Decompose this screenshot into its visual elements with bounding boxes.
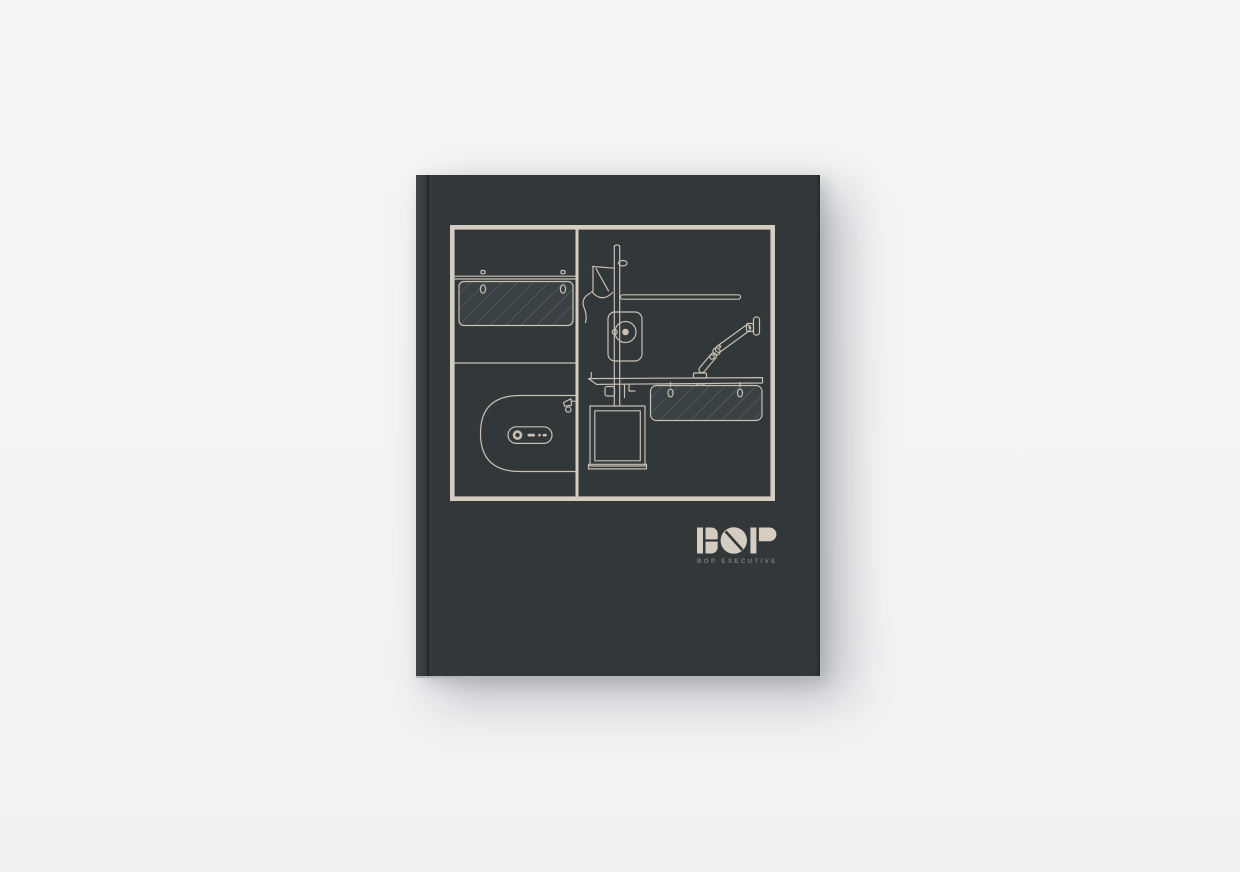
desk-clamp-detail-drawing [564,399,576,412]
brand-tagline: BOP EXECUTIVE [697,558,777,565]
cpu-box-drawing [589,406,647,469]
brand-block: BOP BOP EXECUTIVE [697,527,777,565]
power-module-drawing [508,427,552,444]
furniture-blueprint-drawing [450,225,775,501]
logo-letter-o [721,527,747,553]
spine-crease [427,175,429,676]
beam-rail-drawing [621,295,741,299]
bop-logo [697,527,777,554]
spine-highlight [416,175,427,676]
catalog-book-mockup: BOP BOP EXECUTIVE [416,175,820,678]
wall-rail-drawing [455,271,575,280]
support-pole-drawing [605,245,635,406]
front-cover: BOP BOP EXECUTIVE [416,175,820,676]
logo-letter-p [750,528,776,554]
acoustic-screen-drawing [459,282,573,326]
modesty-panel-drawing [651,383,763,421]
desk-top-view-drawing [481,396,576,472]
storage-panel-drawing [608,312,642,361]
book-right-edge [816,175,820,676]
logo-letter-b [697,528,718,554]
studio-backdrop: BOP BOP EXECUTIVE [0,0,1240,872]
logo-text: BOP [697,554,698,555]
monitor-arm-drawing [694,317,760,387]
